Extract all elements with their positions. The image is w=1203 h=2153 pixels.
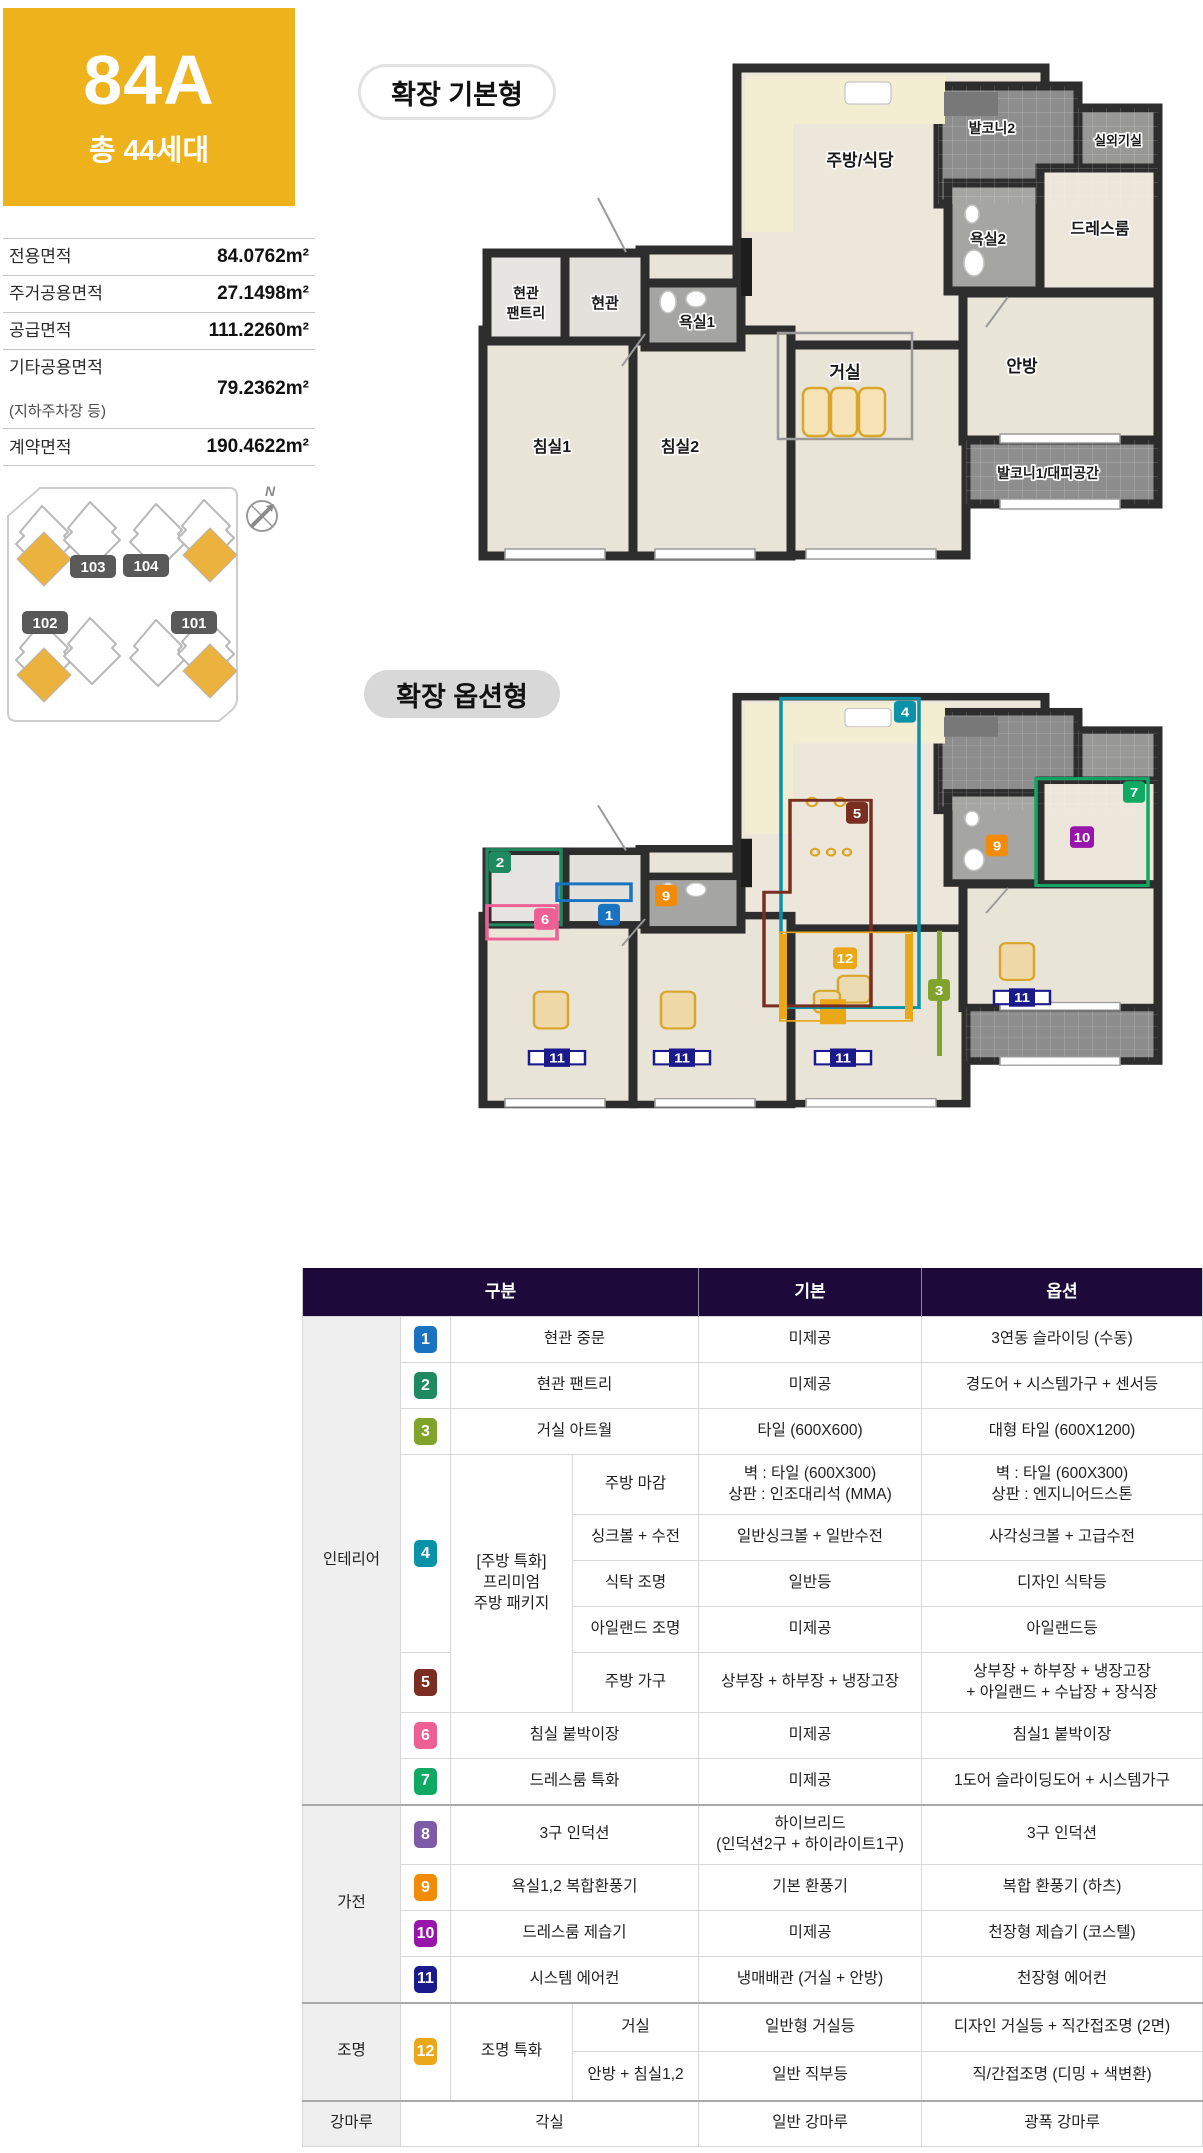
item-sub-label: 싱크볼 + 수전 [573,1515,699,1561]
item-base: 미제공 [699,1363,922,1409]
outdoor-tiles [1078,730,1158,810]
item-group-label: [주방 특화] 프리미엄 주방 패키지 [451,1455,573,1713]
label-bath2: 욕실2 [970,231,1006,248]
label-pantry-1: 현관 [513,285,539,301]
col-header-option: 옵션 [922,1268,1203,1317]
item-option: 디자인 거실등 + 직간접조명 (2면) [922,2003,1203,2052]
area-row: 기타공용면적 (지하주차장 등) 79.2362m² [3,349,315,428]
options-table-header: 구분 기본 옵션 [303,1268,1203,1317]
item-base: 하이브리드 (인덕션2구 + 하이라이트1구) [699,1805,922,1865]
item-base: 미제공 [699,1317,922,1363]
area-value: 190.4622m² [207,436,309,458]
area-label: 전용면적 [9,246,72,267]
table-row-item5: 5 주방 가구 상부장 + 하부장 + 냉장고장 상부장 + 하부장 + 냉장고… [303,1653,1203,1713]
badge-cell: 5 [401,1653,451,1713]
item-label: 드레스룸 특화 [451,1759,699,1805]
item-base: 미제공 [699,1759,922,1805]
balcony1-tiles [966,1008,1158,1061]
room-bed2 [633,916,791,1105]
category-appliance: 가전 [303,1805,401,2003]
col-header-gubun: 구분 [303,1268,699,1317]
item-option: 3연동 슬라이딩 (수동) [922,1317,1203,1363]
item-group-label: 조명 특화 [451,2003,573,2101]
label-balcony1: 발코니1/대피공간 [997,465,1099,481]
item-option: 천장형 에어컨 [922,1957,1203,2003]
area-value: 84.0762m² [217,246,309,268]
item-badge-10: 10 [414,1920,437,1947]
table-row-item2: 2 현관 팬트리 미제공 경도어 + 시스템가구 + 센서등 [303,1363,1203,1409]
item-label: 욕실1,2 복합환풍기 [451,1865,699,1911]
building-badge-103-label: 103 [80,559,105,576]
item-option: 침실1 붙박이장 [922,1713,1203,1759]
item-option: 상부장 + 하부장 + 냉장고장 + 아일랜드 + 수납장 + 장식장 [922,1653,1203,1713]
cooktop [741,839,752,887]
badge-cell: 10 [401,1911,451,1957]
marker-11-label: 11 [549,1050,565,1065]
category-lighting: 조명 [303,2003,401,2101]
col-header-basic: 기본 [699,1268,922,1317]
compass-icon: N [247,483,277,531]
table-row-item9: 9 욕실1,2 복합환풍기 기본 환풍기 복합 환풍기 (하츠) [303,1865,1203,1911]
item-base: 미제공 [699,1911,922,1957]
sofa-icon [803,388,885,436]
item-option: 광폭 강마루 [922,2101,1203,2147]
item-sub-label: 주방 가구 [573,1653,699,1713]
item-label: 현관 팬트리 [451,1363,699,1409]
badge-cell: 9 [401,1865,451,1911]
item-badge-11: 11 [414,1966,437,1993]
area-label-line2: (지하주차장 등) [9,403,106,420]
table-row-item12-sub1: 조명 12 조명 특화 거실 일반형 거실등 디자인 거실등 + 직간접조명 (… [303,2003,1203,2052]
area-label: 공급면적 [9,320,72,341]
label-living: 거실 [829,363,860,382]
kitchen-sink [845,82,891,104]
building-badge-102-label: 102 [32,615,57,632]
item-badge-4: 4 [414,1540,437,1567]
area-value: 79.2362m² [217,378,309,400]
item-label: 드레스룸 제습기 [451,1911,699,1957]
badge-cell: 3 [401,1409,451,1455]
category-interior: 인테리어 [303,1317,401,1805]
marker-11-label: 11 [1014,990,1030,1005]
item-sub-label: 아일랜드 조명 [573,1607,699,1653]
marker-3-label: 3 [935,983,944,998]
item-label: 거실 아트월 [451,1409,699,1455]
item-base: 타일 (600X600) [699,1409,922,1455]
table-row-item1: 인테리어 1 현관 중문 미제공 3연동 슬라이딩 (수동) [303,1317,1203,1363]
item-label: 3구 인덕션 [451,1805,699,1865]
area-value: 27.1498m² [217,283,309,305]
item-label: 침실 붙박이장 [451,1713,699,1759]
item-badge-7: 7 [414,1768,437,1795]
table-row-item4-sub1: 4 [주방 특화] 프리미엄 주방 패키지 주방 마감 벽 : 타일 (600X… [303,1455,1203,1515]
item-label: 각실 [401,2101,699,2147]
label-pantry-2: 팬트리 [507,305,546,321]
label-bed2: 침실2 [661,437,699,456]
label-balcony2: 발코니2 [969,120,1016,136]
label-bed1: 침실1 [533,437,571,456]
marker-1-label: 1 [605,908,614,923]
table-row-item6: 6 침실 붙박이장 미제공 침실1 붙박이장 [303,1713,1203,1759]
cooktop [741,238,752,296]
outdoor-tiles [1078,108,1158,204]
item-badge-12: 12 [414,2038,437,2065]
marker-11: 11 [654,1048,710,1066]
item-base: 일반등 [699,1561,922,1607]
table-row-item3: 3 거실 아트월 타일 (600X600) 대형 타일 (600X1200) [303,1409,1203,1455]
label-bath1: 욕실1 [679,314,715,331]
room-bed2 [633,330,791,556]
item-sub-label: 식탁 조명 [573,1561,699,1607]
marker-9-label: 9 [662,889,671,904]
item-base: 벽 : 타일 (600X300) 상판 : 인조대리석 (MMA) [699,1455,922,1515]
floorplan-option: 1 2 3 4 5 6 7 9 9 10 12 [470,690,1165,1112]
item-sub-label: 주방 마감 [573,1455,699,1515]
item-base: 일반 강마루 [699,2101,922,2147]
badge-cell: 11 [401,1957,451,2003]
kitchen-sink [845,708,891,726]
compass-north-label: N [265,483,276,499]
site-location-map: 103 104 102 101 N [0,485,300,730]
item-option: 경도어 + 시스템가구 + 센서등 [922,1363,1203,1409]
area-value: 111.2260m² [209,320,309,342]
label-entry: 현관 [591,295,619,312]
item-option: 3구 인덕션 [922,1805,1203,1865]
item-badge-3: 3 [414,1418,437,1445]
table-row-item8: 가전 8 3구 인덕션 하이브리드 (인덕션2구 + 하이라이트1구) 3구 인… [303,1805,1203,1865]
building-badge-101-label: 101 [181,615,206,632]
badge-cell: 4 [401,1455,451,1653]
item-base: 일반형 거실등 [699,2003,922,2052]
area-label-line1: 기타공용면적 [9,358,103,377]
area-label: 주거공용면적 [9,283,103,304]
marker-11: 11 [994,988,1050,1006]
marker-11-label: 11 [835,1050,851,1065]
building-badge-104-label: 104 [133,558,159,575]
item-option: 사각싱크볼 + 고급수전 [922,1515,1203,1561]
item-label: 현관 중문 [451,1317,699,1363]
badge-cell: 7 [401,1759,451,1805]
area-summary-table: 전용면적 84.0762m² 주거공용면적 27.1498m² 공급면적 111… [3,238,315,466]
room-master [963,885,1158,1009]
room-living [790,345,966,555]
item-badge-2: 2 [414,1372,437,1399]
badge-cell: 1 [401,1317,451,1363]
area-row: 계약면적 190.4622m² [3,428,315,466]
item-option: 벽 : 타일 (600X300) 상판 : 엔지니어드스톤 [922,1455,1203,1515]
area-label: 계약면적 [9,437,72,458]
marker-5-label: 5 [853,806,862,821]
table-row-item7: 7 드레스룸 특화 미제공 1도어 슬라이딩도어 + 시스템가구 [303,1759,1203,1805]
marker-4-label: 4 [901,705,910,720]
item-base: 미제공 [699,1713,922,1759]
item-option: 대형 타일 (600X1200) [922,1409,1203,1455]
marker-10-label: 10 [1074,830,1091,845]
item-badge-6: 6 [414,1722,437,1749]
options-table: 구분 기본 옵션 인테리어 1 현관 중문 미제공 3연동 슬라이딩 (수동) … [302,1268,1203,2147]
balcony2-closet [944,92,998,116]
item-option: 아일랜드등 [922,1607,1203,1653]
item-sub-label: 안방 + 침실1,2 [573,2052,699,2101]
marker-2-label: 2 [496,855,505,870]
category-flooring: 강마루 [303,2101,401,2147]
badge-cell: 2 [401,1363,451,1409]
item-base: 냉매배관 (거실 + 안방) [699,1957,922,2003]
badge-cell: 6 [401,1713,451,1759]
label-outdoor-unit: 실외기실 [1094,133,1142,148]
marker-11: 11 [815,1048,871,1066]
badge-cell: 8 [401,1805,451,1865]
marker-11: 11 [529,1048,585,1066]
item-base: 일반 직부등 [699,2052,922,2101]
item-base: 상부장 + 하부장 + 냉장고장 [699,1653,922,1713]
item-option: 복합 환풍기 (하츠) [922,1865,1203,1911]
floorplan-basic: 주방/식당 발코니2 실외기실 현관 팬트리 현관 욕실1 욕실2 드레스룸 거… [470,60,1165,565]
unit-type-card: 84A 총 44세대 [3,8,295,206]
area-row: 주거공용면적 27.1498m² [3,275,315,312]
label-dress: 드레스룸 [1071,220,1130,238]
item-option: 1도어 슬라이딩도어 + 시스템가구 [922,1759,1203,1805]
table-row-flooring: 강마루 각실 일반 강마루 광폭 강마루 [303,2101,1203,2147]
marker-9-label: 9 [993,839,1002,854]
marker-12-label: 12 [837,951,854,966]
item-option: 천장형 제습기 (코스텔) [922,1911,1203,1957]
table-row-item11: 11 시스템 에어컨 냉매배관 (거실 + 안방) 천장형 에어컨 [303,1957,1203,2003]
item-label: 시스템 에어컨 [451,1957,699,2003]
item-base: 미제공 [699,1607,922,1653]
label-kitchen: 주방/식당 [826,151,894,170]
area-row: 공급면적 111.2260m² [3,312,315,349]
item-base: 기본 환풍기 [699,1865,922,1911]
room-master [963,293,1158,441]
marker-11-label: 11 [674,1050,690,1065]
brochure-page: 84A 총 44세대 전용면적 84.0762m² 주거공용면적 27.1498… [0,0,1203,2153]
item-badge-5: 5 [414,1669,437,1696]
marker-7-label: 7 [1130,785,1139,800]
item-badge-8: 8 [414,1821,437,1848]
label-master: 안방 [1006,357,1038,376]
area-label: 기타공용면적 (지하주차장 등) [9,357,106,421]
unit-total-households: 총 44세대 [89,127,209,169]
item-badge-9: 9 [414,1874,437,1901]
unit-code: 84A [83,45,214,115]
item-option: 직/간접조명 (디밍 + 색변환) [922,2052,1203,2101]
table-row-item10: 10 드레스룸 제습기 미제공 천장형 제습기 (코스텔) [303,1911,1203,1957]
balcony2-closet [944,717,998,737]
item-badge-1: 1 [414,1326,437,1353]
marker-6-label: 6 [541,912,550,927]
item-sub-label: 거실 [573,2003,699,2052]
badge-cell: 12 [401,2003,451,2101]
item-base: 일반싱크볼 + 일반수전 [699,1515,922,1561]
area-row: 전용면적 84.0762m² [3,238,315,275]
item-option: 디자인 식탁등 [922,1561,1203,1607]
